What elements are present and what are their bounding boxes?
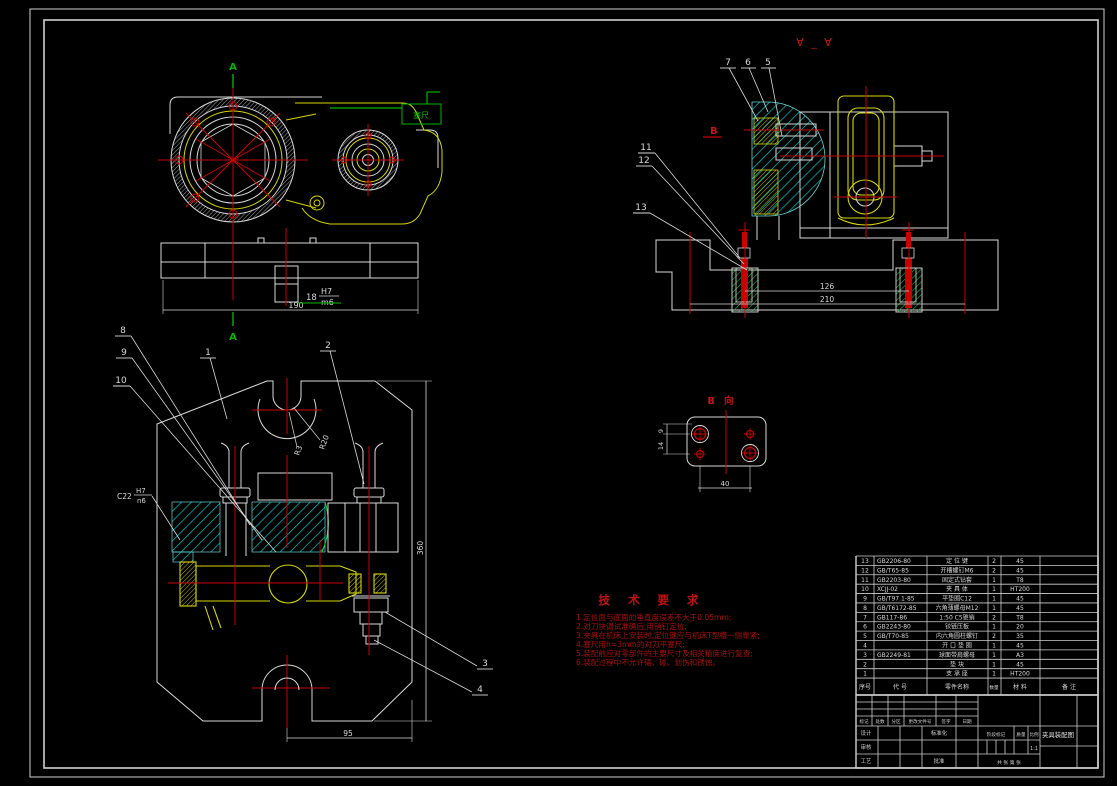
balloon-10: 10 bbox=[115, 376, 127, 386]
bom-cell: GB/T6172-85 bbox=[877, 605, 917, 612]
bom-cell: T8 bbox=[1015, 577, 1024, 584]
section-label-a-top: A bbox=[229, 62, 237, 73]
tech-req-item-1: 1.定位面与底面的垂直度误差不大于0.05mm; bbox=[576, 612, 731, 622]
tb-stage-weight: 质量 bbox=[1016, 731, 1026, 738]
cad-drawing-sheet: 190 18 H7 m6 A A 塞尺 ∀ _ ∀ bbox=[0, 0, 1117, 786]
tech-req-item-6: 6.装配过程中不允许磕、碰、划伤和锈蚀。 bbox=[576, 657, 720, 667]
bom-table: 13GB2206-80定 位 键24512GB/T65-85开槽螺钉M62451… bbox=[856, 556, 1098, 695]
balloon-2: 2 bbox=[325, 341, 331, 351]
bom-cell: GB/T65-85 bbox=[877, 567, 909, 574]
bom-cell: 5 bbox=[863, 633, 867, 640]
fixture-block-hatch bbox=[172, 502, 328, 562]
bom-cell: 4 bbox=[863, 643, 867, 650]
bom-cell: 12 bbox=[861, 567, 869, 574]
tb-role-standard: 标准化 bbox=[931, 729, 948, 737]
bom-cell: 1 bbox=[992, 577, 996, 584]
bom-header: 序号 代 号 零件名称 数量 材 料 备 注 bbox=[859, 683, 1076, 691]
bom-cell: 1 bbox=[992, 671, 996, 678]
workpiece bbox=[258, 473, 332, 500]
bom-cell: GB117-86 bbox=[877, 614, 907, 621]
dim-190-text: 190 bbox=[288, 301, 303, 310]
tb-role-process: 工艺 bbox=[861, 758, 872, 765]
dim-126: 126 bbox=[745, 282, 909, 291]
bom-cell: XCJJ-02 bbox=[877, 586, 898, 593]
centerlines bbox=[158, 86, 308, 236]
c22-text: C22 bbox=[117, 492, 132, 501]
boss bbox=[332, 124, 404, 196]
tb-role-check: 审核 bbox=[861, 743, 872, 751]
dim-210: 210 bbox=[690, 295, 965, 304]
fit-upper: H7 bbox=[321, 287, 332, 296]
tb-sheet-note: 共 张 第 张 bbox=[997, 759, 1021, 766]
tb-drawing-title: 夹具装配图 bbox=[1042, 730, 1074, 739]
balloon-11: 11 bbox=[640, 143, 651, 153]
section-label-a-bottom: A bbox=[229, 332, 237, 343]
bom-cell: 1 bbox=[992, 605, 996, 612]
bom-cell: 固定式钻套 bbox=[942, 576, 972, 584]
bom-cell: 夹 具 体 bbox=[946, 585, 968, 593]
bom-cell: 2 bbox=[992, 633, 996, 640]
bom-cell: 开槽螺钉M6 bbox=[941, 566, 974, 574]
bom-cell: T8 bbox=[1015, 614, 1024, 621]
b-ref-text: B bbox=[710, 126, 718, 137]
bom-cell: 支 承 座 bbox=[946, 670, 968, 678]
bom-cell: 垫 块 bbox=[950, 660, 964, 668]
tb-role-approve: 批准 bbox=[934, 757, 945, 765]
radius-labels: R3 R20 bbox=[289, 408, 331, 457]
fit-18: 18 bbox=[306, 293, 317, 303]
drawing-canvas: 190 18 H7 m6 A A 塞尺 ∀ _ ∀ bbox=[0, 0, 1117, 786]
dim-126-text: 126 bbox=[820, 282, 835, 291]
bom-cell: GB2206-80 bbox=[877, 558, 911, 565]
tb-scale-value: 1:1 bbox=[1030, 746, 1038, 752]
balloon-12: 12 bbox=[638, 156, 649, 166]
view-plan: 190 18 H7 m6 A A 塞尺 bbox=[158, 62, 442, 343]
bom-cell: 铰链压板 bbox=[945, 623, 969, 631]
c22-lower: n6 bbox=[137, 497, 146, 505]
bom-header-qty: 数量 bbox=[989, 684, 999, 691]
bom-cell: 35 bbox=[1016, 633, 1024, 640]
bom-cell: 1 bbox=[992, 652, 996, 659]
bom-cell: A3 bbox=[1016, 652, 1024, 659]
tech-req-item-5: 5.装配前应对零部件的主要尺寸及相关精度进行复查; bbox=[576, 648, 753, 658]
balloon-9: 9 bbox=[121, 348, 127, 358]
bom-cell: 45 bbox=[1016, 605, 1024, 612]
bom-cell: 2 bbox=[992, 567, 996, 574]
dim-360-text: 360 bbox=[416, 541, 425, 556]
dim-r3: R3 bbox=[292, 444, 304, 457]
tb-rev-mark: 标记 bbox=[859, 718, 869, 725]
bom-cell: 六角薄螺母M12 bbox=[936, 604, 979, 612]
bom-cell: 45 bbox=[1016, 567, 1024, 574]
dim-95-text: 95 bbox=[343, 729, 353, 738]
title-block: 标记 处数 分区 更改文件号 签字 日期 设计 审核 工艺 标准化 批准 阶段标… bbox=[856, 695, 1098, 768]
base-plate bbox=[161, 238, 418, 302]
bom-cell: GB2203-80 bbox=[877, 577, 911, 584]
tech-req-item-2: 2.对刀块调试准确后,用销钉定位; bbox=[576, 621, 687, 631]
bom-cell: GB/T97.1-85 bbox=[877, 596, 915, 603]
bom-cell: 45 bbox=[1016, 643, 1024, 650]
bom-cell: 10 bbox=[861, 586, 869, 593]
dim-c22: C22 H7 n6 bbox=[117, 487, 180, 540]
tb-rev-doc: 更改文件号 bbox=[909, 718, 932, 725]
bom-cell: 定 位 键 bbox=[946, 557, 968, 565]
bom-cell: HT200 bbox=[1010, 586, 1030, 593]
bom-cell: 11 bbox=[861, 577, 869, 584]
bom-cell: 9 bbox=[863, 596, 867, 603]
bom-cell: HT200 bbox=[1010, 671, 1030, 678]
dim-r20: R20 bbox=[317, 434, 331, 451]
bom-cell: 1 bbox=[992, 624, 996, 631]
bom-cell: GB2243-80 bbox=[877, 624, 911, 631]
view-b: B 向 9 14 4 bbox=[657, 395, 766, 492]
balloon-13: 13 bbox=[635, 203, 646, 213]
bom-cell: 45 bbox=[1016, 661, 1024, 668]
bom-cell: 平垫圈C12 bbox=[942, 595, 972, 603]
tb-stage-scale: 比例 bbox=[1029, 731, 1039, 738]
bom-cell: 20 bbox=[1016, 624, 1024, 631]
dim-40-text: 40 bbox=[721, 480, 730, 488]
bom-header-material: 材 料 bbox=[1013, 683, 1027, 691]
bom-header-index: 序号 bbox=[859, 683, 871, 691]
feeler-label: 塞尺 bbox=[413, 110, 429, 120]
tech-requirements: 技 术 要 求 1.定位面与底面的垂直度误差不大于0.05mm; 2.对刀块调试… bbox=[576, 593, 760, 667]
bom-cell: 1 bbox=[992, 596, 996, 603]
balloon-3: 3 bbox=[482, 659, 488, 669]
section-vv-title: ∀ _ ∀ bbox=[796, 36, 834, 49]
tb-rev-zone: 分区 bbox=[891, 718, 901, 725]
clamp-bolt bbox=[352, 596, 390, 644]
dim-210-text: 210 bbox=[820, 295, 835, 304]
bom-cell: 2 bbox=[863, 661, 867, 668]
right-support bbox=[328, 503, 398, 552]
tech-req-title: 技 术 要 求 bbox=[598, 593, 705, 607]
bom-cell: 6 bbox=[863, 624, 867, 631]
dim-14-text: 14 bbox=[657, 442, 665, 450]
dim-fit-18: 18 H7 m6 bbox=[298, 287, 341, 307]
balloon-8: 8 bbox=[120, 326, 126, 336]
b-reference: B bbox=[703, 126, 722, 137]
bom-cell: 1 bbox=[992, 661, 996, 668]
bom-cell: 1 bbox=[863, 671, 867, 678]
view-section-vv: ∀ _ ∀ bbox=[633, 36, 998, 318]
bom-cell: 13 bbox=[861, 558, 869, 565]
dim-9-text: 9 bbox=[657, 429, 665, 433]
c22-upper: H7 bbox=[136, 487, 146, 495]
bom-cell: 7 bbox=[863, 614, 867, 621]
bom-cell: 2 bbox=[992, 558, 996, 565]
tech-req-item-3: 3.夹具在机床上安装时,定位键应与机床T型槽一侧靠紧; bbox=[576, 630, 760, 640]
flange bbox=[158, 86, 308, 236]
tb-stage-mark: 阶段标记 bbox=[987, 731, 1006, 738]
balloon-5: 5 bbox=[765, 58, 771, 68]
bom-cell: 内六角圆柱螺钉 bbox=[936, 632, 978, 640]
balloon-1: 1 bbox=[205, 348, 211, 358]
bom-header-code: 代 号 bbox=[893, 683, 907, 691]
bom-cell: 开 口 垫 圈 bbox=[942, 642, 972, 650]
bom-cell: 45 bbox=[1016, 558, 1024, 565]
b-holes bbox=[692, 426, 759, 462]
bom-cell: GB2249-81 bbox=[877, 652, 911, 659]
balloon-7: 7 bbox=[725, 58, 731, 68]
tech-req-item-4: 4.塞尺用h=3mm的对刀平塞尺; bbox=[576, 639, 685, 649]
view-section-aa: R3 R20 bbox=[113, 326, 493, 742]
bom-header-name: 零件名称 bbox=[945, 683, 969, 691]
bom-cell: 2 bbox=[992, 614, 996, 621]
bom-cell: 8 bbox=[863, 605, 867, 612]
dim-360: 360 bbox=[374, 381, 432, 721]
view-b-title: B 向 bbox=[707, 395, 736, 407]
balloon-4: 4 bbox=[477, 685, 483, 695]
bom-cell: 1:50 C5锥销 bbox=[939, 613, 974, 621]
bom-cell: 球面带肩螺母 bbox=[939, 651, 975, 659]
tb-role-design: 设计 bbox=[861, 729, 872, 737]
balloons-1234: 1 2 3 4 bbox=[200, 341, 493, 695]
tb-rev-date: 日期 bbox=[962, 719, 972, 725]
dim-190: 190 bbox=[163, 280, 418, 314]
feeler-callout: 塞尺 bbox=[330, 92, 441, 124]
tb-rev-sign: 签字 bbox=[941, 718, 951, 725]
bom-cell: 45 bbox=[1016, 596, 1024, 603]
balloon-6: 6 bbox=[745, 58, 751, 68]
aa-centerlines bbox=[168, 446, 369, 728]
bom-header-remark: 备 注 bbox=[1062, 683, 1076, 691]
tb-rev-count: 处数 bbox=[875, 718, 885, 725]
bom-cell: GB/T70-85 bbox=[877, 633, 909, 640]
bom-cell: 3 bbox=[863, 652, 867, 659]
bom-cell: 1 bbox=[992, 643, 996, 650]
bom-cell: 1 bbox=[992, 586, 996, 593]
